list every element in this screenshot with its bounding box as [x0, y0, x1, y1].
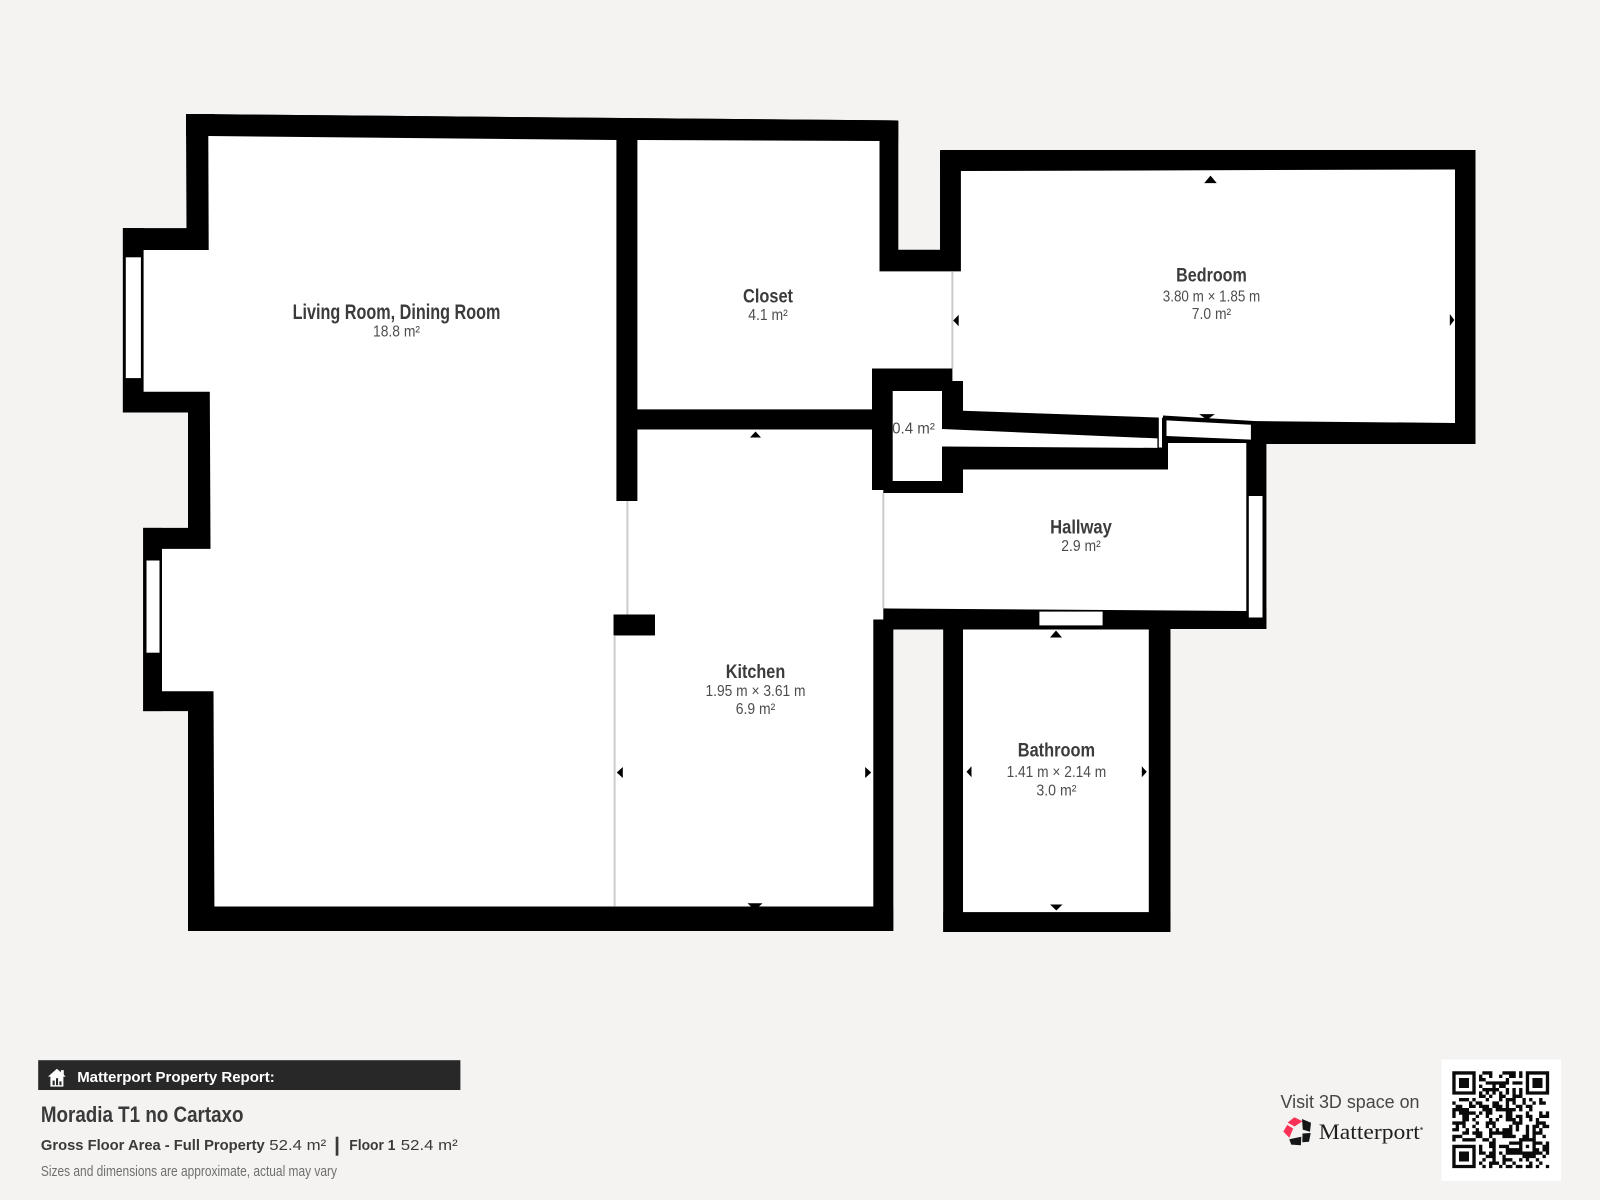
svg-text:6.9 m²: 6.9 m² — [736, 701, 776, 718]
svg-text:Visit 3D space on: Visit 3D space on — [1281, 1091, 1420, 1112]
svg-text:2.9 m²: 2.9 m² — [1061, 538, 1101, 555]
svg-text:1.95 m × 3.61 m: 1.95 m × 3.61 m — [706, 683, 806, 700]
svg-text:Bedroom: Bedroom — [1176, 266, 1247, 287]
svg-text:18.8 m²: 18.8 m² — [373, 323, 420, 340]
svg-text:Closet: Closet — [743, 286, 794, 307]
svg-text:Bathroom: Bathroom — [1018, 741, 1095, 762]
svg-text:3.0 m²: 3.0 m² — [1036, 782, 1076, 799]
svg-text:52.4 m²: 52.4 m² — [269, 1137, 326, 1154]
svg-text:Hallway: Hallway — [1050, 517, 1112, 538]
svg-text:Living Room, Dining Room: Living Room, Dining Room — [293, 301, 501, 324]
svg-text:Kitchen: Kitchen — [726, 662, 786, 683]
svg-text:52.4 m²: 52.4 m² — [401, 1137, 458, 1154]
svg-text:1.41 m × 2.14 m: 1.41 m × 2.14 m — [1007, 764, 1107, 781]
svg-text:3.80 m × 1.85 m: 3.80 m × 1.85 m — [1163, 289, 1261, 306]
svg-text:Moradia T1 no Cartaxo: Moradia T1 no Cartaxo — [41, 1102, 244, 1127]
svg-text:0.4 m²: 0.4 m² — [892, 421, 935, 438]
svg-text:Sizes and dimensions are appro: Sizes and dimensions are approximate, ac… — [41, 1164, 338, 1180]
svg-text:Gross Floor Area - Full Proper: Gross Floor Area - Full Property — [41, 1137, 265, 1154]
svg-text:Floor 1: Floor 1 — [349, 1137, 395, 1154]
svg-text:4.1 m²: 4.1 m² — [748, 307, 788, 324]
svg-text:7.0 m²: 7.0 m² — [1192, 306, 1231, 323]
svg-text:Matterport Property Report:: Matterport Property Report: — [77, 1069, 275, 1086]
svg-text:Matterport: Matterport — [1319, 1119, 1420, 1144]
